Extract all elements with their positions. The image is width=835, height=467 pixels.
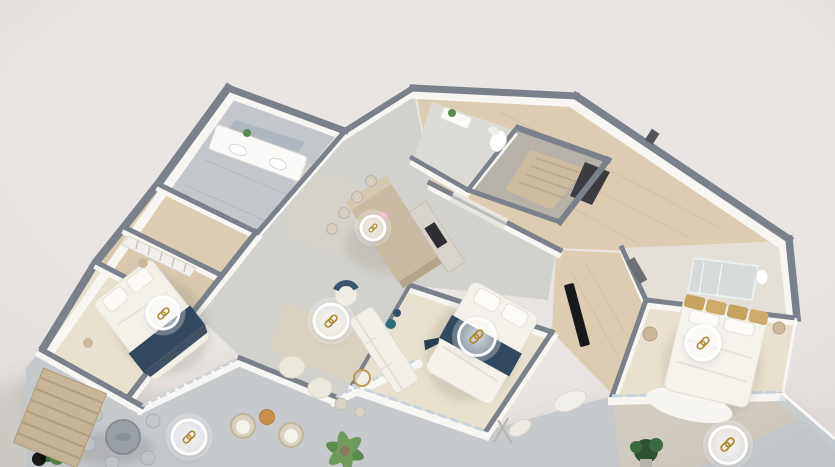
chain-link-icon [366,221,379,234]
hotspot-layer [0,0,835,467]
hotspot-bedroom-left[interactable] [146,296,181,331]
hotspot-bedroom-middle[interactable] [457,317,497,357]
chain-link-icon [717,434,738,455]
hotspot-terrace-left[interactable] [171,419,208,456]
hotspot-living-area[interactable] [313,303,350,340]
hotspot-terrace-right[interactable] [708,425,748,465]
hotspot-kitchen-island[interactable] [360,215,387,242]
chain-link-icon [179,427,198,446]
chain-link-icon [154,304,172,322]
virtual-tour-viewport [0,0,835,467]
hotspot-bedroom-right[interactable] [685,325,722,362]
chain-link-icon [321,311,340,330]
chain-link-icon [693,333,712,352]
chain-link-icon [466,326,487,347]
